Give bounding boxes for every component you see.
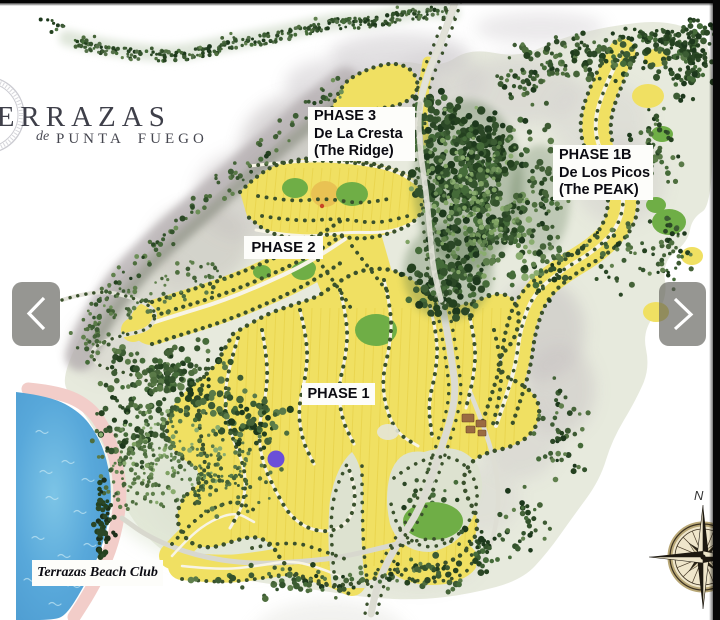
svg-text:N: N [694,488,704,503]
